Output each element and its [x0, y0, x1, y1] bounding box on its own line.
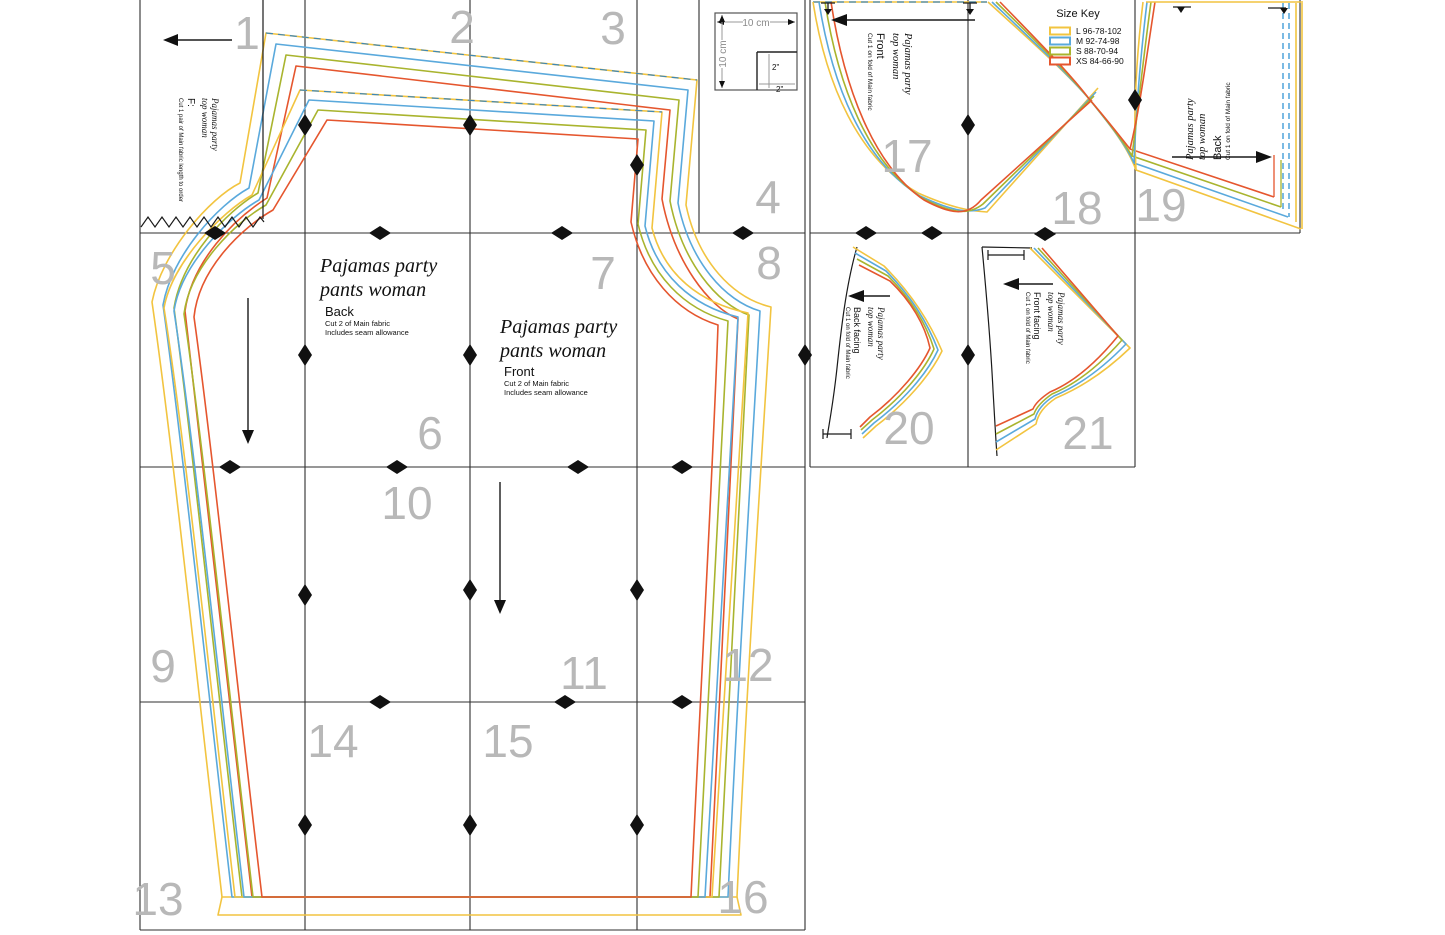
- page-number-21: 21: [1062, 407, 1113, 459]
- front-facing-title-1: Pajamas party: [1056, 291, 1066, 345]
- page-number-8: 8: [756, 237, 782, 289]
- front-facing-fold-line: [982, 247, 997, 456]
- top-front-label: Pajamas party top woman Front Cut 1 on f…: [866, 32, 913, 111]
- top-front-title-1: Pajamas party: [902, 32, 913, 95]
- pants-hem-line: [218, 897, 741, 915]
- size-swatch-4: [1050, 58, 1070, 65]
- front-facing-name: Front facing: [1032, 292, 1042, 340]
- pants-front-label: Pajamas party pants woman Front Cut 2 of…: [498, 316, 617, 397]
- match-diamond: [463, 814, 477, 836]
- top-back-title-2: top woman: [1197, 114, 1208, 160]
- test-square-inner-width-label: 2": [776, 85, 783, 94]
- pants-back-label: Pajamas party pants woman Back Cut 2 of …: [318, 255, 437, 337]
- page-number-10: 10: [381, 477, 432, 529]
- pants-back-title-2: pants woman: [318, 279, 426, 301]
- page-number-17: 17: [881, 130, 932, 182]
- page-number-9: 9: [150, 640, 176, 692]
- match-diamond: [386, 460, 408, 474]
- match-diamond: [630, 814, 644, 836]
- page-number-16: 16: [717, 871, 768, 923]
- match-diamond: [219, 460, 241, 474]
- top-front-name: Front: [874, 33, 886, 59]
- match-diamond: [298, 344, 312, 366]
- size-label-2: M 92-74-98: [1076, 36, 1120, 46]
- pants-front-note: Includes seam allowance: [504, 388, 588, 397]
- match-diamond: [463, 344, 477, 366]
- pants-back-cut: Cut 2 of Main fabric: [325, 319, 390, 328]
- top-back-name: Back: [1212, 135, 1224, 160]
- pants-front-title-2: pants woman: [498, 340, 606, 362]
- page-number-20: 20: [883, 402, 934, 454]
- front-facing-fold-bracket: [988, 250, 1024, 260]
- tie-zigzag-edge: [141, 217, 264, 227]
- pants-front-outlines: [164, 90, 748, 915]
- pants-back-outline-S: [174, 55, 749, 897]
- pants-front-name: Front: [504, 364, 535, 379]
- test-square: 10 cm 10 cm 2" 2": [715, 13, 797, 94]
- match-diamond: [463, 114, 477, 136]
- fold-tick-marks: [821, 3, 1288, 15]
- pants-back-note: Includes seam allowance: [325, 328, 409, 337]
- match-diamond: [921, 226, 943, 240]
- match-diamond: [298, 814, 312, 836]
- pants-front-outline-XS: [194, 120, 718, 897]
- size-key-title: Size Key: [1056, 8, 1100, 20]
- pants-front-cut: Cut 2 of Main fabric: [504, 379, 569, 388]
- pants-front-title-1: Pajamas party: [499, 316, 617, 338]
- pants-back-title-1: Pajamas party: [319, 255, 437, 277]
- page-number-7: 7: [590, 247, 616, 299]
- match-diamond: [732, 226, 754, 240]
- top-front-title-2: top woman: [890, 33, 901, 79]
- top-back-title-1: Pajamas party: [1185, 98, 1196, 161]
- page-number-18: 18: [1051, 182, 1102, 234]
- match-diamond: [369, 695, 391, 709]
- top-back-cut: Cut 1 on fold of Main fabric: [1225, 82, 1232, 160]
- front-facing-label: Pajamas party top woman Front facing Cut…: [1024, 291, 1066, 364]
- match-diamond: [630, 579, 644, 601]
- back-facing-label: Pajamas party top woman Back facing Cut …: [844, 306, 886, 379]
- pattern-sheet-svg: 10 cm 10 cm 2" 2" Size Key L 96-78-102M …: [0, 0, 1445, 935]
- pants-front-outline-L: [164, 90, 748, 897]
- match-diamond: [855, 226, 877, 240]
- front-facing-title-2: top woman: [1046, 292, 1056, 332]
- size-key: Size Key L 96-78-102M 92-74-98S 88-70-94…: [1050, 8, 1124, 66]
- page-number-5: 5: [150, 242, 176, 294]
- size-swatch-3: [1050, 48, 1070, 55]
- size-key-rows: L 96-78-102M 92-74-98S 88-70-94XS 84-66-…: [1050, 26, 1124, 66]
- tie-title-2: top woman: [200, 98, 210, 138]
- page-number-19: 19: [1135, 179, 1186, 231]
- tie-name: F:: [185, 98, 196, 107]
- match-diamond: [551, 226, 573, 240]
- match-diamond: [671, 460, 693, 474]
- top-back-label: Pajamas party top woman Back Cut 1 on fo…: [1185, 82, 1232, 161]
- test-square-inner-height-label: 2": [772, 63, 779, 72]
- size-swatch-1: [1050, 28, 1070, 35]
- page-number-6: 6: [417, 407, 443, 459]
- page-number-13: 13: [132, 873, 183, 925]
- front-facing-cut: Cut 1 on fold of Main fabric: [1024, 292, 1030, 364]
- match-diamond: [369, 226, 391, 240]
- size-label-4: XS 84-66-90: [1076, 56, 1124, 66]
- pants-back-outline-M: [163, 44, 760, 897]
- page-number-3: 3: [600, 2, 626, 54]
- front-facing-top-edge: [982, 247, 1032, 248]
- page-number-4: 4: [755, 171, 781, 223]
- page-number-14: 14: [307, 715, 358, 767]
- match-diamond: [671, 695, 693, 709]
- page-number-11: 11: [560, 647, 608, 699]
- match-diamond: [298, 584, 312, 606]
- back-facing-title-1: Pajamas party: [876, 306, 886, 360]
- pants-front-outline-S: [184, 110, 728, 897]
- pants-back-name: Back: [325, 304, 354, 319]
- page-number-2: 2: [449, 1, 475, 53]
- back-facing-title-2: top woman: [866, 307, 876, 347]
- size-label-3: S 88-70-94: [1076, 46, 1118, 56]
- match-diamond: [463, 579, 477, 601]
- tie-label: Pajamas party top woman F: Cut 1 pair of…: [177, 97, 220, 202]
- test-square-height-label: 10 cm: [718, 40, 729, 67]
- page-number-12: 12: [722, 639, 773, 691]
- match-diamond: [567, 460, 589, 474]
- tie-cut: Cut 1 pair of Main fabric length to orde…: [177, 98, 183, 202]
- page-number-15: 15: [482, 715, 533, 767]
- match-diamond: [961, 344, 975, 366]
- page-number-1: 1: [234, 7, 260, 59]
- pattern-sheet: 10 cm 10 cm 2" 2" Size Key L 96-78-102M …: [0, 0, 1445, 935]
- back-facing-name: Back facing: [852, 307, 862, 354]
- back-facing-cut: Cut 1 on fold of Main fabric: [844, 307, 850, 379]
- size-swatch-2: [1050, 38, 1070, 45]
- size-label-1: L 96-78-102: [1076, 26, 1122, 36]
- test-square-width-label: 10 cm: [742, 18, 769, 29]
- top-front-cut: Cut 1 on fold of Main fabric: [866, 33, 873, 111]
- match-diamond: [961, 114, 975, 136]
- tie-title-1: Pajamas party: [210, 97, 220, 151]
